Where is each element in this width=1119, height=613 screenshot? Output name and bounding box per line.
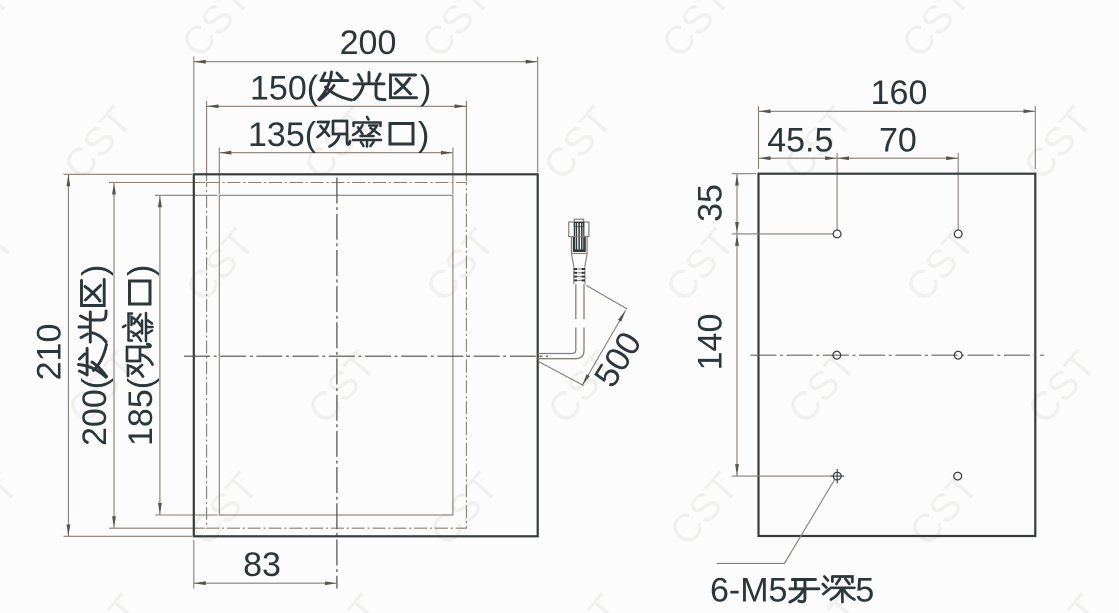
svg-text:135(: 135( — [248, 116, 317, 154]
svg-text:83: 83 — [243, 546, 281, 584]
svg-text:200: 200 — [340, 24, 397, 62]
svg-text:): ) — [418, 116, 429, 154]
svg-text:150(: 150( — [250, 70, 319, 108]
svg-text:5: 5 — [855, 572, 874, 610]
svg-text:): ) — [76, 265, 114, 276]
svg-text:45.5: 45.5 — [767, 122, 833, 160]
svg-text:160: 160 — [871, 74, 928, 112]
svg-text:200(: 200( — [76, 377, 114, 446]
svg-text:140: 140 — [692, 314, 730, 371]
svg-text:35: 35 — [692, 184, 730, 222]
svg-text:): ) — [420, 70, 431, 108]
svg-text:6-M5: 6-M5 — [710, 572, 787, 610]
svg-text:): ) — [122, 265, 160, 276]
svg-text:185(: 185( — [122, 377, 160, 446]
svg-text:70: 70 — [879, 122, 917, 160]
svg-text:210: 210 — [30, 324, 68, 381]
